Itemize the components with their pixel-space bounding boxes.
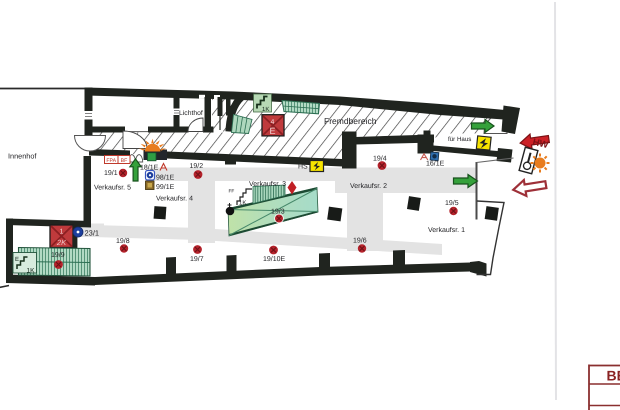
svg-text:19/4: 19/4	[373, 155, 387, 163]
svg-text:1K: 1K	[27, 268, 36, 275]
svg-text:19/10E: 19/10E	[263, 255, 286, 263]
svg-text:99/1E: 99/1E	[156, 183, 175, 191]
svg-text:23/1: 23/1	[85, 229, 100, 238]
svg-text:2K: 2K	[56, 238, 67, 247]
svg-text:1K: 1K	[262, 106, 269, 113]
svg-text:BE: BE	[607, 368, 620, 384]
svg-text:Verkaufsr. 2: Verkaufsr. 2	[350, 182, 387, 190]
svg-text:FPA: FPA	[106, 158, 116, 164]
svg-text:Fremdbereich: Fremdbereich	[324, 116, 377, 126]
svg-text:Innenhof: Innenhof	[8, 152, 37, 161]
svg-text:19/8: 19/8	[116, 237, 130, 245]
svg-text:E: E	[269, 126, 275, 136]
svg-text:19/7: 19/7	[190, 255, 204, 263]
svg-text:HS: HS	[298, 164, 308, 171]
svg-text:19/9: 19/9	[51, 251, 65, 259]
svg-text:E: E	[15, 256, 19, 263]
svg-text:Verkaufsr. 5: Verkaufsr. 5	[94, 184, 131, 192]
svg-text:19/1: 19/1	[104, 169, 118, 177]
svg-text:98/1E: 98/1E	[156, 174, 175, 182]
svg-text:19/2: 19/2	[190, 162, 204, 170]
svg-text:16/1E: 16/1E	[426, 160, 445, 168]
svg-text:FF: FF	[229, 189, 235, 195]
svg-text:für Haus: für Haus	[448, 136, 471, 143]
svg-text:BF: BF	[121, 158, 128, 164]
svg-text:Lichthof: Lichthof	[179, 110, 203, 117]
svg-text:19/5: 19/5	[445, 199, 459, 207]
svg-text:Verkaufsr. 1: Verkaufsr. 1	[428, 226, 465, 234]
svg-text:1K: 1K	[239, 200, 246, 207]
svg-text:19/6: 19/6	[353, 237, 367, 245]
svg-text:1: 1	[60, 229, 64, 236]
svg-text:Verkaufsr. 4: Verkaufsr. 4	[156, 195, 193, 203]
svg-text:4: 4	[271, 119, 275, 126]
svg-text:Verkaufsr. 3: Verkaufsr. 3	[249, 180, 286, 188]
